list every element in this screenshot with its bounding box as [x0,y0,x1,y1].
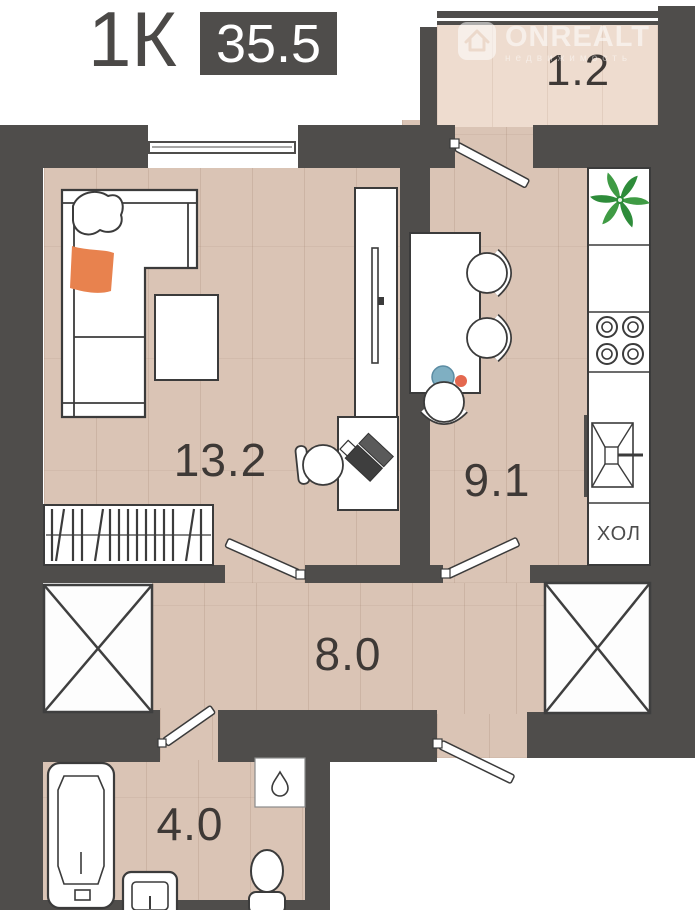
floor-plan: 1.2 13.2 9.1 8.0 4.0 ХОЛ 1К 35.5 ONREALT… [0,0,695,910]
bathroom-door [158,705,215,747]
desk [338,417,398,510]
watermark: ONREALT недвижимость [458,22,650,64]
bathroom-sink [123,872,177,910]
shaft-right [545,583,650,713]
apartment-type-label: 1К [88,0,177,85]
dining-chair [467,252,508,294]
watermark-tagline: недвижимость [505,53,650,64]
coffee-table [155,295,218,380]
desk-chair [295,445,343,485]
living-room-door [225,538,305,579]
window [149,142,295,153]
bathtub [48,763,114,908]
furniture-layer [0,0,695,910]
water-heater [255,758,305,807]
kitchen-counter [584,168,651,565]
hallway-area-label: 8.0 [288,627,408,681]
entrance-door [433,739,515,784]
house-icon [458,22,496,60]
tv [372,248,378,363]
bathroom-area-label: 4.0 [130,797,250,851]
fridge-label: ХОЛ [588,523,650,546]
apartment-area-badge: 35.5 [200,12,337,75]
toilet [249,850,285,910]
kitchen-area-label: 9.1 [437,453,557,507]
dining-table [410,233,480,393]
wardrobe [44,505,213,565]
balcony-door [450,139,530,188]
living-room-area-label: 13.2 [148,433,293,487]
sofa-blanket [70,246,114,293]
shaft-left [44,585,152,712]
dining-chair [467,317,508,359]
kitchen-door [441,537,520,578]
tv-stand [355,188,397,417]
dining-chair [423,382,465,422]
watermark-brand: ONREALT [505,22,650,52]
sofa-pillow [73,192,123,235]
